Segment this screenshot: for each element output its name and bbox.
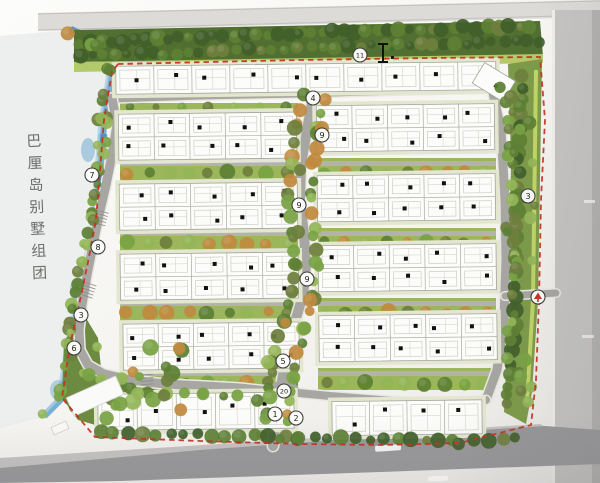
plan-marker-11: 11 (353, 48, 367, 62)
site-title-char: 组 (31, 244, 47, 260)
plan-marker-label: 3 (78, 311, 83, 320)
plan-marker-7: 7 (85, 168, 99, 182)
plan-marker-8: 8 (91, 240, 105, 254)
plan-marker-2: 2 (289, 411, 303, 425)
villa-block (315, 310, 502, 366)
plan-marker-3: 3 (74, 308, 88, 322)
plan-marker-label: 9 (296, 201, 301, 210)
plan-marker-20: 20 (277, 384, 291, 398)
villa-block (312, 100, 499, 156)
entrance-marker (531, 290, 545, 304)
plan-marker-label: 8 (95, 243, 100, 252)
plan-marker-label: 11 (356, 52, 364, 60)
plan-marker-label: 2 (293, 414, 298, 423)
plan-marker-label: 9 (304, 275, 309, 284)
villa-block (313, 170, 500, 226)
site-title-char: 团 (32, 266, 48, 282)
plan-marker-label: 4 (310, 94, 315, 103)
villa-block (314, 240, 501, 296)
plan-marker-9: 9 (292, 198, 306, 212)
plan-marker-label: 9 (319, 131, 324, 140)
plan-marker-3: 3 (521, 189, 535, 203)
plan-marker-9: 9 (315, 128, 329, 142)
plan-marker-label: 1 (272, 410, 277, 419)
site-title-char: 墅 (30, 222, 46, 238)
site-title-char: 巴 (26, 134, 42, 150)
plan-marker-9: 9 (300, 272, 314, 286)
site-title-char: 岛 (28, 178, 44, 194)
plan-marker-4: 4 (306, 91, 320, 105)
villa-block (115, 178, 302, 234)
plan-marker-label: 3 (525, 192, 530, 201)
plan-marker-label: 6 (71, 344, 76, 353)
villa-block (114, 108, 301, 164)
villa-block (116, 248, 303, 304)
site-title-char: 厘 (27, 156, 43, 172)
plan-marker-5: 5 (276, 354, 290, 368)
plan-marker-label: 20 (280, 388, 288, 396)
plan-marker-6: 6 (67, 341, 81, 355)
plan-marker-label: 7 (89, 171, 94, 180)
plan-marker-1: 1 (268, 407, 282, 421)
site-plan-page: 1149793893652012 巴厘岛别墅组团 (0, 0, 600, 483)
plan-marker-label: 5 (280, 357, 285, 366)
site-plan-drawing: 1149793893652012 (0, 0, 600, 483)
site-title-char: 别 (29, 200, 45, 216)
